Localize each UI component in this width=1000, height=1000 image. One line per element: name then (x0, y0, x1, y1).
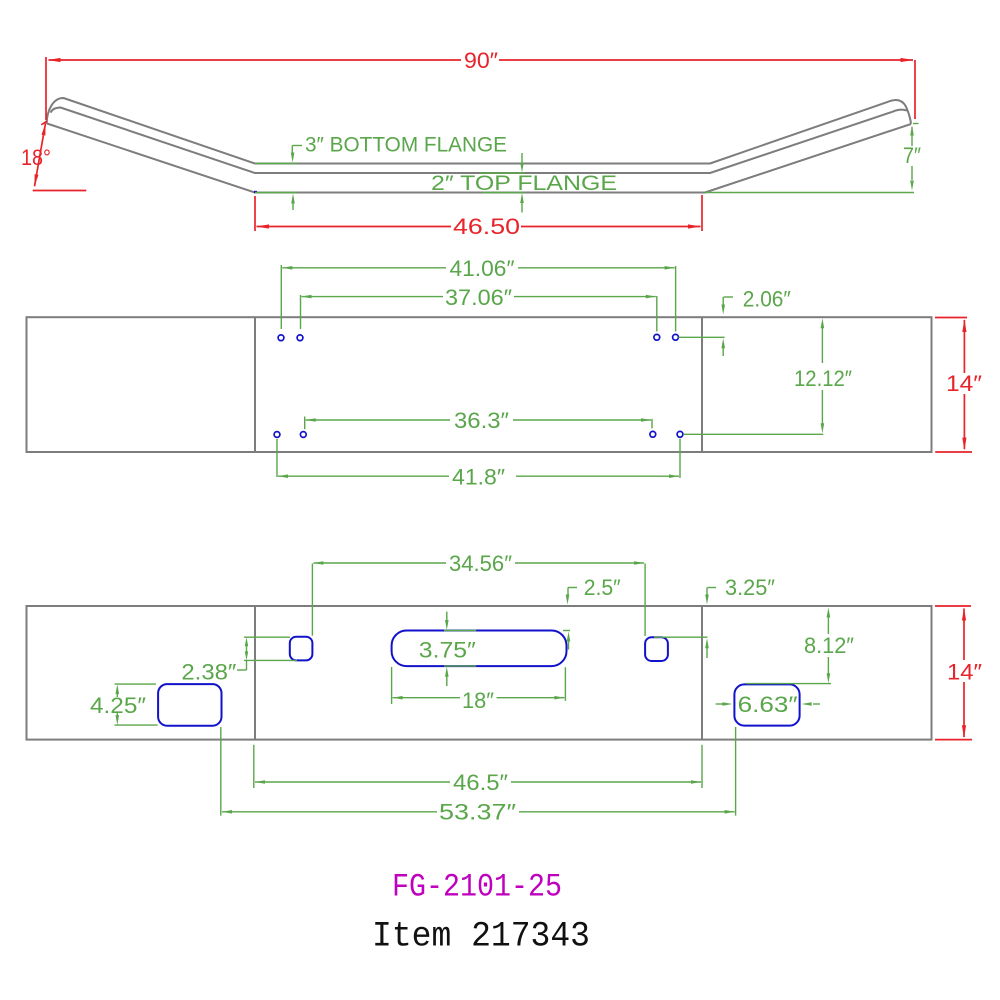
svg-text:46.5″: 46.5″ (453, 770, 508, 795)
svg-text:2.06″: 2.06″ (743, 287, 791, 312)
svg-text:41.8″: 41.8″ (452, 465, 505, 490)
svg-text:41.06″: 41.06″ (450, 256, 515, 281)
svg-text:36.3″: 36.3″ (454, 408, 509, 433)
svg-text:8.12″: 8.12″ (804, 633, 854, 658)
svg-text:14″: 14″ (947, 660, 982, 685)
svg-text:37.06″: 37.06″ (445, 285, 512, 310)
svg-text:4.25″: 4.25″ (90, 693, 146, 718)
svg-text:7″: 7″ (903, 143, 921, 168)
svg-text:Item 217343: Item 217343 (372, 917, 590, 957)
svg-text:3.75″: 3.75″ (419, 638, 476, 663)
svg-text:18″: 18″ (462, 688, 494, 713)
svg-text:3.25″: 3.25″ (725, 575, 775, 600)
svg-text:12.12″: 12.12″ (794, 366, 852, 391)
svg-text:6.63″: 6.63″ (738, 692, 798, 717)
svg-text:46.50: 46.50 (453, 214, 520, 239)
svg-text:2″ TOP FLANGE: 2″ TOP FLANGE (431, 172, 617, 195)
svg-text:90″: 90″ (464, 48, 498, 73)
svg-text:2.38″: 2.38″ (181, 659, 236, 684)
svg-text:2.5″: 2.5″ (584, 575, 621, 600)
svg-text:FG-2101-25: FG-2101-25 (392, 869, 562, 906)
svg-text:18°: 18° (21, 145, 51, 170)
svg-text:14″: 14″ (946, 371, 982, 396)
svg-text:3″ BOTTOM FLANGE: 3″ BOTTOM FLANGE (305, 134, 507, 157)
svg-text:53.37″: 53.37″ (439, 800, 516, 825)
svg-text:34.56″: 34.56″ (449, 551, 512, 576)
